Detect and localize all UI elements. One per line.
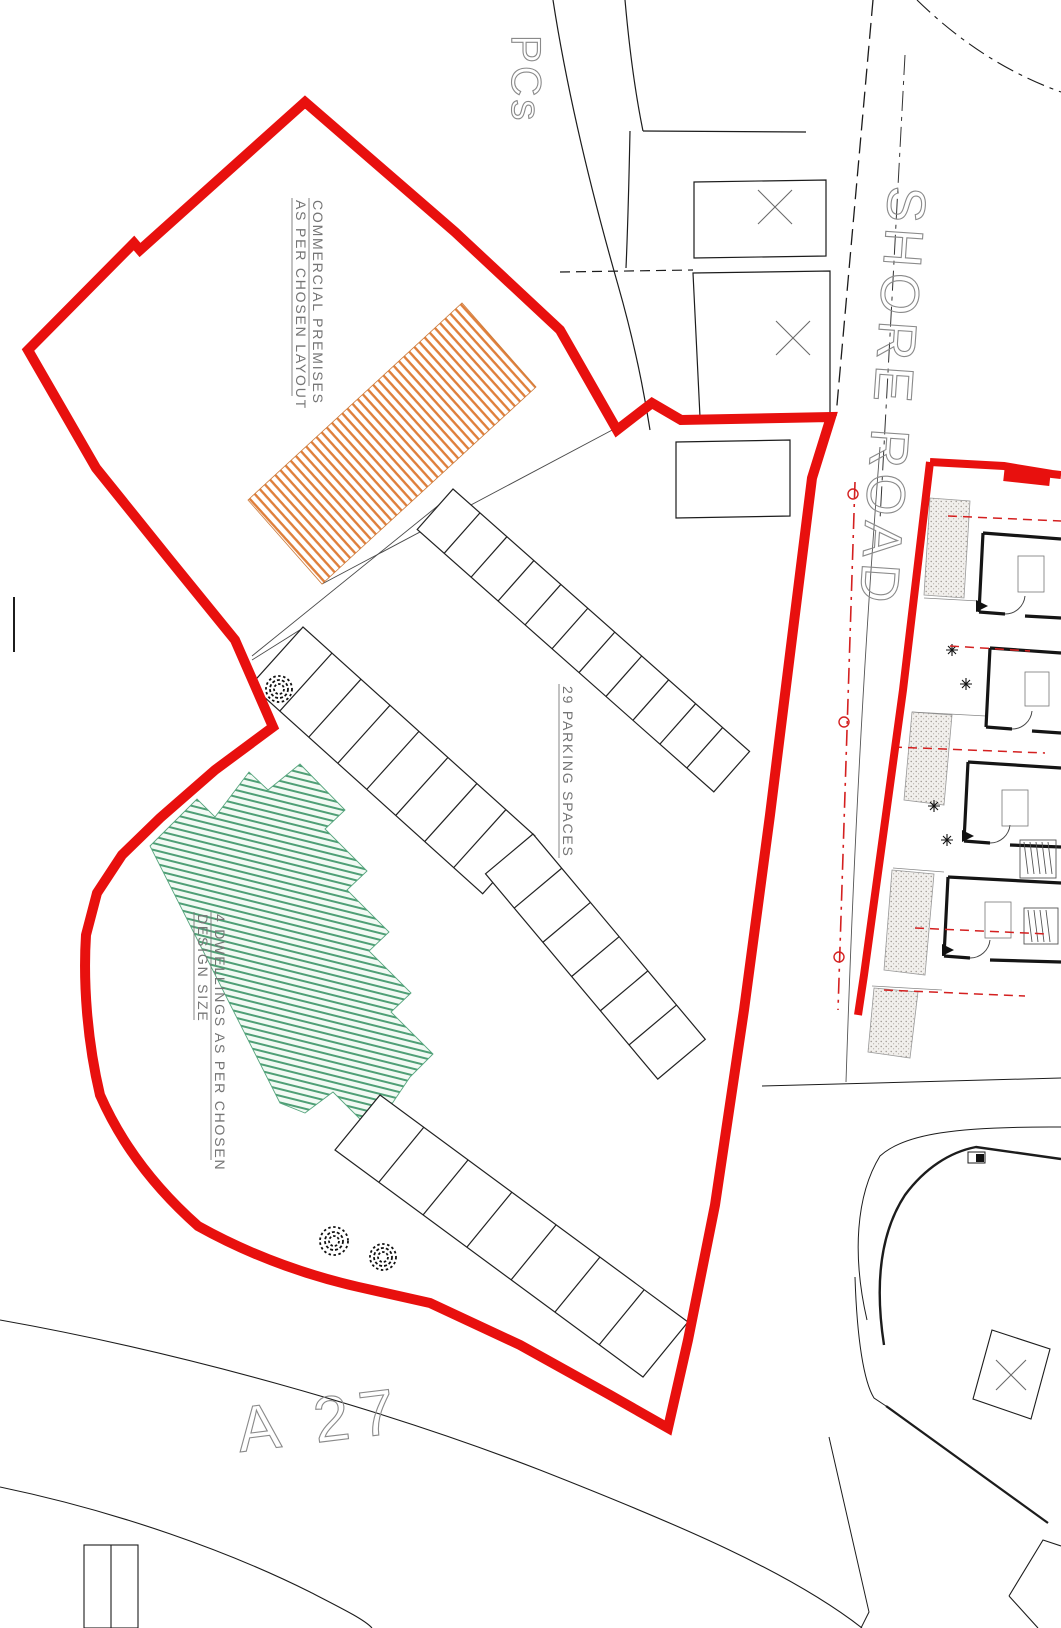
plot-inner-line — [626, 131, 630, 268]
marker-box-fill — [976, 1154, 984, 1162]
dwellings-label-line2: DESIGN SIZE — [195, 914, 211, 1022]
boundary-line — [762, 1078, 1061, 1086]
a27-lower-edge — [0, 1487, 372, 1628]
a27-road-linework — [0, 1320, 862, 1628]
tree-icon — [320, 1227, 348, 1255]
access-road-right-edge — [625, 0, 643, 131]
site-plan-drawing: COMMERCIAL PREMISES AS PER CHOSEN LAYOUT… — [0, 0, 1061, 1628]
parking-row-upper — [417, 489, 749, 792]
building-outline — [693, 271, 830, 417]
garden-stippled — [868, 988, 918, 1058]
plot-dashed-division — [560, 270, 693, 272]
a27-road-label: A 27 — [233, 1374, 409, 1466]
dwellings-label: 4 DWELLINGS AS PER CHOSEN DESIGN SIZE — [194, 912, 228, 1171]
parking-row-bottom — [335, 1095, 688, 1377]
bottom-right-linework — [829, 1127, 1061, 1628]
boundary-bold — [886, 1406, 1048, 1523]
curve-road-edge — [855, 1277, 886, 1406]
garden-stippled — [884, 870, 934, 975]
pcs-road-label: PCs — [503, 35, 550, 123]
commercial-premises-label: COMMERCIAL PREMISES AS PER CHOSEN LAYOUT — [292, 198, 326, 410]
site-plan-page: COMMERCIAL PREMISES AS PER CHOSEN LAYOUT… — [0, 0, 1061, 1628]
access-road-left-edge — [553, 0, 650, 430]
dwellings-block — [150, 764, 433, 1132]
dwellings-hatched-area — [150, 764, 433, 1132]
road-edge — [829, 1437, 869, 1628]
commercial-label-line2: AS PER CHOSEN LAYOUT — [293, 200, 309, 410]
commercial-label-line1: COMMERCIAL PREMISES — [310, 200, 326, 405]
dwellings-label-line1: 4 DWELLINGS AS PER CHOSEN — [212, 914, 228, 1171]
parking-label: 29 PARKING SPACES — [560, 686, 576, 858]
parking-spaces-label: 29 PARKING SPACES — [559, 684, 576, 858]
curve-road-edge-bold — [880, 1147, 1061, 1345]
plot-boundary-line — [643, 131, 806, 132]
parking-row-lower-middle — [486, 834, 706, 1079]
curve-road-edge — [858, 1127, 1061, 1320]
garden-stippled — [924, 498, 970, 598]
neighbour-buildings-top — [676, 180, 830, 518]
garden-stippled — [904, 712, 952, 805]
building-corner — [1009, 1540, 1061, 1628]
tree-icon — [370, 1244, 396, 1270]
parking-row-outline — [417, 489, 749, 792]
building-outline — [676, 440, 790, 518]
detail-stairs — [1020, 840, 1058, 944]
parking-row-outline — [335, 1095, 688, 1377]
road-centerline-dashdot — [917, 0, 1061, 92]
